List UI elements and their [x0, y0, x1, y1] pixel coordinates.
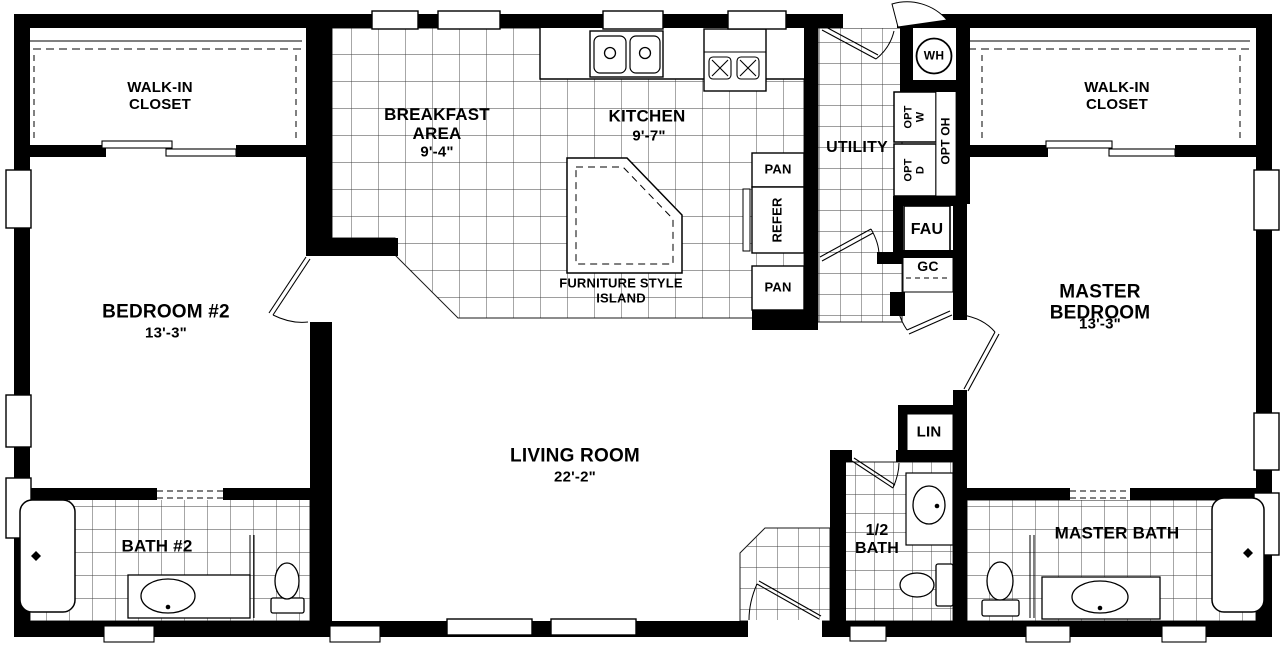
kitchen-sink — [590, 31, 663, 77]
linen-closet-box — [907, 414, 953, 454]
toilet-half-bath — [900, 573, 934, 597]
optional-dryer-box — [894, 144, 936, 196]
optional-overhead-niche — [936, 86, 956, 196]
stove — [704, 29, 766, 91]
toilet-tank-bath2 — [271, 598, 304, 613]
front-door-opening — [748, 620, 822, 637]
window-right-master-2 — [1254, 413, 1279, 470]
window-left-bedroom2-1 — [6, 170, 31, 228]
toilet-tank-half-bath — [936, 564, 953, 606]
toilet-tank-master — [982, 600, 1019, 616]
toilet-bath2 — [275, 563, 299, 599]
refrigerator-box — [743, 187, 804, 253]
window-bottom-living-2 — [551, 619, 636, 635]
half-bath-fixtures — [900, 473, 953, 606]
gc-cabinet — [903, 256, 953, 292]
optional-washer-box — [894, 92, 936, 142]
entry-tile-floor — [740, 528, 830, 621]
sink-half-bath — [913, 486, 945, 524]
window-top-kitchen-sink — [603, 11, 663, 29]
bathtub-bath2 — [20, 500, 75, 612]
bathtub-master — [1212, 498, 1264, 612]
toilet-master — [987, 562, 1013, 600]
utility-door-opening — [843, 14, 897, 28]
window-top-stove-vent — [728, 11, 786, 29]
water-heater — [917, 39, 952, 74]
floor-plan: WALK-IN CLOSET BREAKFAST AREA 9'-4" KITC… — [0, 0, 1285, 649]
window-right-master-1 — [1254, 170, 1279, 230]
utility-tile-floor — [818, 28, 902, 322]
window-top-breakfast-2 — [438, 11, 500, 29]
window-top-breakfast-1 — [372, 11, 418, 29]
pantry-lower-cabinet — [752, 266, 804, 310]
furnace-box — [904, 206, 950, 252]
pantry-upper-cabinet — [752, 153, 804, 187]
window-left-bedroom2-2 — [6, 395, 31, 447]
floor-plan-drawing — [0, 0, 1285, 649]
window-bottom-living-1 — [447, 619, 532, 635]
